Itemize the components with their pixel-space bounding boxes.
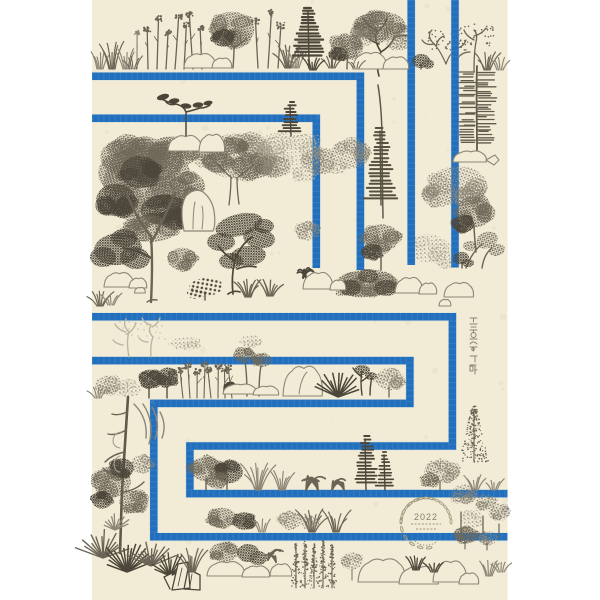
svg-text:2022: 2022: [414, 512, 438, 522]
